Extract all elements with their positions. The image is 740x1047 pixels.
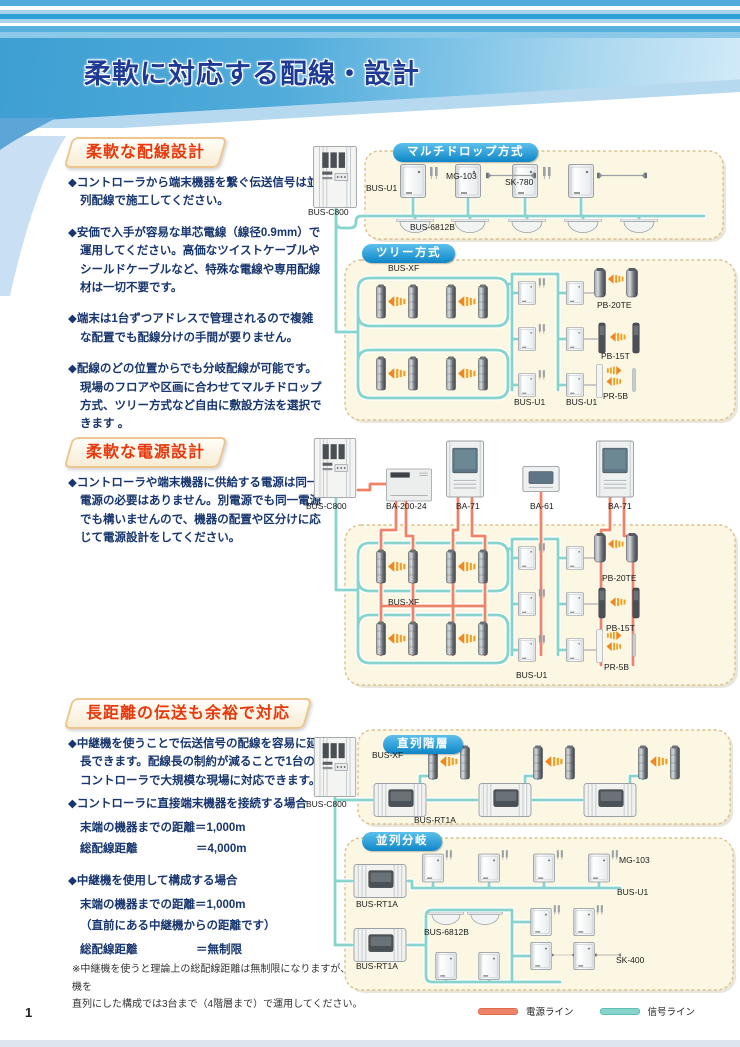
controller-device [314, 737, 355, 796]
case-repeater: ◆中継機を使用して構成する場合 末端の機器までの距離＝1,000m （直前にある… [68, 872, 328, 962]
header-banner: 柔軟に対応する配線・設計 [0, 0, 740, 140]
bullet: ◆安価で入手が容易な単芯電線（線径0.9mm）で運用してください。高価なツイスト… [68, 224, 322, 298]
corner-sweep-decoration [0, 118, 70, 298]
signal-line-swatch [600, 1008, 640, 1015]
wiring-bullets: ◆コントローラから端末機器を繋ぐ伝送信号は並列配線で施工してください。 ◆安価で… [68, 174, 322, 447]
label-pb-15t: PB-15T [606, 624, 635, 633]
label-bus-u1: BUS-U1 [566, 398, 597, 407]
spec-line: 末端の機器までの距離＝1,000m [80, 896, 328, 914]
spec-line: （直前にある中継機からの距離です） [80, 917, 328, 935]
label-pb-15t: PB-15T [601, 352, 630, 361]
spec-text: 末端の機器までの距離＝1,000m [80, 819, 246, 837]
legend-power: 電源ライン [478, 1004, 574, 1018]
parallel-diagram [300, 830, 740, 1000]
multidrop-badge: マルチドロップ方式 [393, 143, 538, 162]
page-number: 1 [25, 1005, 32, 1020]
label-sk-400: SK-400 [616, 956, 644, 965]
label-ba-200-24: BA-200-24 [386, 502, 427, 511]
label-bus-6812b: BUS-6812B [410, 223, 455, 232]
serial-diagram [300, 715, 740, 830]
spec-line: 総配線距離 ＝無制限 [80, 941, 328, 959]
case-heading: ◆コントローラに直接端末機器を接続する場合 [68, 795, 328, 813]
bullet: ◆中継機を使うことで伝送信号の配線を容易に延長できます。配線長の制約が減ることで… [68, 735, 322, 790]
controller-device [314, 146, 357, 207]
catalog-page: 柔軟に対応する配線・設計 柔軟な配線設計 ◆コントローラから端末機器を繋ぐ伝送信… [0, 0, 740, 1047]
spec-line: 末端の機器までの距離＝1,000m [80, 819, 328, 837]
label-pr-5b: PR-5B [603, 392, 628, 401]
bullet: ◆コントローラや端末機器に供給する電源は同一電源の必要はありません。別電源でも同… [68, 474, 322, 548]
label-bus-u1: BUS-U1 [516, 671, 547, 680]
power-bullets: ◆コントローラや端末機器に供給する電源は同一電源の必要はありません。別電源でも同… [68, 474, 322, 561]
power-line-swatch [478, 1008, 518, 1015]
label-bus-rt1a: BUS-RT1A [414, 816, 456, 825]
page-title: 柔軟に対応する配線・設計 [84, 52, 420, 91]
section-badge-wiring: 柔軟な配線設計 [64, 137, 228, 168]
line-legend: 電源ライン 信号ライン [478, 1004, 695, 1018]
legend-label: 信号ライン [648, 1004, 696, 1018]
section-badge-distance: 長距離の伝送も余裕で対応 [64, 698, 313, 729]
legend-label: 電源ライン [526, 1004, 574, 1018]
parallel-badge: 並列分岐 [362, 832, 442, 851]
distance-intro: ◆中継機を使うことで伝送信号の配線を容易に延長できます。配線長の制約が減ることで… [68, 735, 322, 803]
label-bus-rt1a: BUS-RT1A [356, 962, 398, 971]
spec-text: （直前にある中継機からの距離です） [80, 917, 276, 935]
label-ba-61: BA-61 [530, 502, 554, 511]
label-bus-xf: BUS-XF [388, 264, 419, 273]
label-bus-xf: BUS-XF [372, 751, 403, 760]
label-bus-xf: BUS-XF [388, 598, 419, 607]
bullet: ◆配線のどの位置からでも分岐配線が可能です。現場のフロアや区画に合わせてマルチド… [68, 360, 322, 434]
label-bus-u1: BUS-U1 [617, 888, 648, 897]
power-diagram [300, 430, 740, 700]
section-badge-power: 柔軟な電源設計 [64, 437, 228, 468]
spec-text: 末端の機器までの距離＝1,000m [80, 896, 246, 914]
label-bus-u1: BUS-U1 [366, 184, 397, 193]
label-bus-c800: BUS-C800 [306, 502, 347, 511]
bottom-strip [0, 1040, 740, 1047]
section-title: 柔軟な電源設計 [70, 439, 221, 466]
label-pb-20te: PB-20TE [602, 574, 637, 583]
spec-label: 総配線距離 [80, 840, 196, 858]
bullet: ◆端末は1台ずつアドレスで管理されるので複雑な配置でも配線分けの手間が要りません… [68, 310, 322, 347]
label-bus-c800: BUS-C800 [306, 800, 347, 809]
bullet: ◆コントローラから端末機器を繋ぐ伝送信号は並列配線で施工してください。 [68, 174, 322, 211]
spec-value: ＝4,000m [196, 840, 247, 858]
spec-line: 総配線距離 ＝4,000m [80, 840, 328, 858]
legend-signal: 信号ライン [600, 1004, 696, 1018]
repeaters [374, 783, 636, 816]
label-bus-rt1a: BUS-RT1A [356, 900, 398, 909]
label-mg-103: MG-103 [619, 856, 650, 865]
label-ba-71: BA-71 [608, 502, 632, 511]
spec-label: 総配線距離 [80, 941, 196, 959]
spec-value: ＝無制限 [196, 941, 242, 959]
label-bus-c800: BUS-C800 [308, 208, 349, 217]
header-stripe [0, 32, 740, 38]
label-mg-103: MG-103 [446, 172, 477, 181]
case-heading: ◆中継機を使用して構成する場合 [68, 872, 328, 890]
label-ba-71: BA-71 [456, 502, 480, 511]
section-title: 長距離の伝送も余裕で対応 [70, 700, 306, 727]
section-title: 柔軟な配線設計 [70, 139, 221, 166]
tree-badge: ツリー方式 [362, 244, 455, 263]
label-bus-u1: BUS-U1 [514, 398, 545, 407]
label-bus-6812b: BUS-6812B [424, 928, 469, 937]
case-direct: ◆コントローラに直接端末機器を接続する場合 末端の機器までの距離＝1,000m … [68, 795, 328, 860]
label-pr-5b: PR-5B [604, 663, 629, 672]
label-pb-20te: PB-20TE [597, 301, 632, 310]
label-sk-780: SK-780 [505, 178, 533, 187]
